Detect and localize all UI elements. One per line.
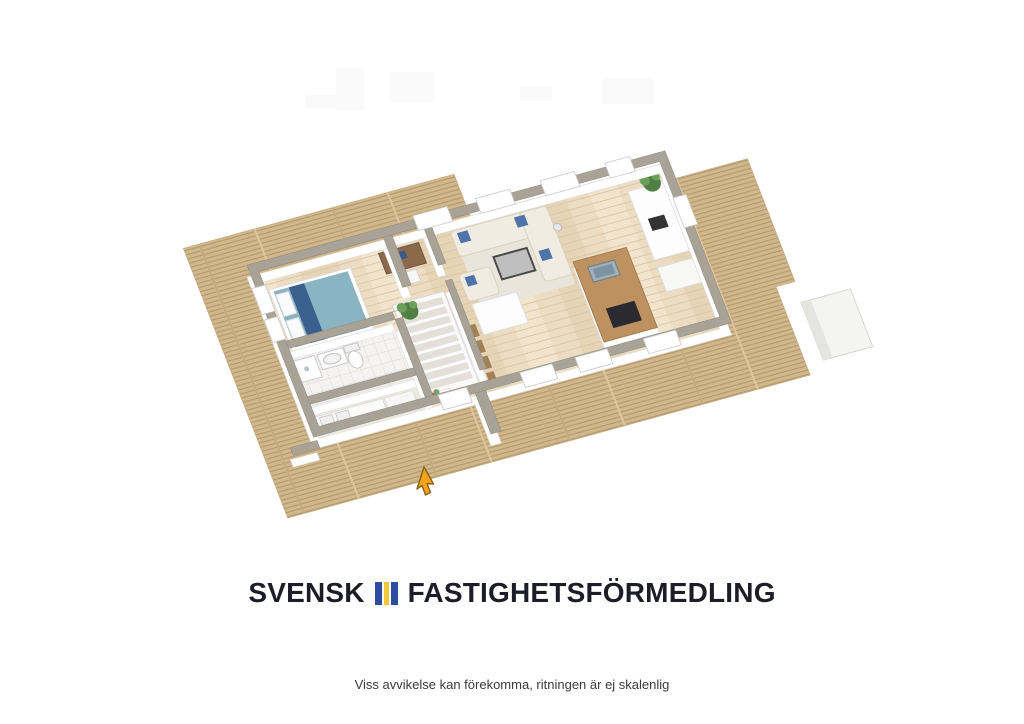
brand-flag-icon bbox=[375, 582, 398, 605]
page: SVENSK FASTIGHETSFÖRMEDLING Viss avvikel… bbox=[0, 0, 1024, 724]
upper-floor-ghost bbox=[305, 68, 654, 110]
brand-name-right: FASTIGHETSFÖRMEDLING bbox=[408, 577, 776, 609]
floorplan-3d bbox=[0, 0, 1024, 724]
disclaimer-text: Viss avvikelse kan förekomma, ritningen … bbox=[0, 677, 1024, 692]
brand-logo: SVENSK FASTIGHETSFÖRMEDLING bbox=[0, 577, 1024, 609]
entrance-ramp bbox=[801, 289, 873, 360]
brand-name-left: SVENSK bbox=[248, 577, 364, 609]
